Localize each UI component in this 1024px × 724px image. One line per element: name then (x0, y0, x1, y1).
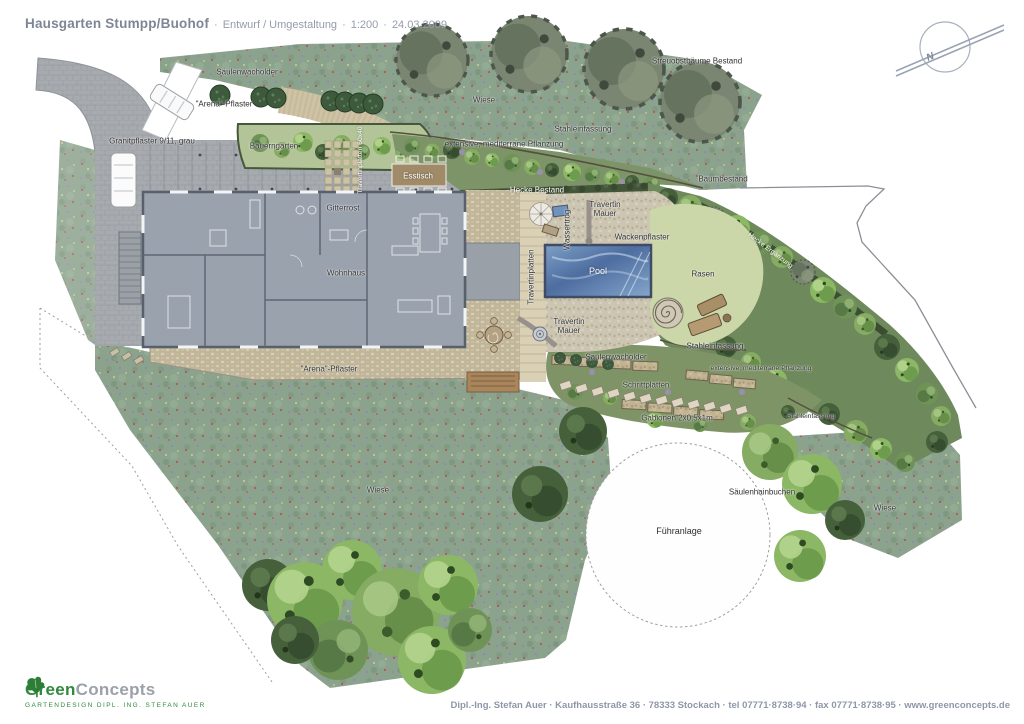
company-logo: Green Concepts GARTENDESIGN DIPL. ING. S… (25, 676, 206, 709)
car-parked (111, 153, 136, 207)
label-esstisch: Esstisch (403, 171, 433, 180)
title-separator: · (383, 19, 387, 31)
label-gabionen: Gabionen 2x0,5x1m (641, 413, 713, 422)
label-streuobstbaeume: Streuobstbäume Bestand (652, 56, 742, 65)
label-wiese-top: Wiese (473, 95, 495, 104)
north-symbol: N (896, 22, 1004, 76)
label-wackenpflaster: Wackenpflaster (615, 232, 670, 241)
label-extensive-top: extensive, mediterrane Pflanzung (445, 139, 564, 148)
label-arena-pflaster-top: "Arena"-Pflaster (196, 99, 253, 108)
label-schrittplatten: Schrittplatten (623, 380, 670, 389)
label-travertin-mauer-mid: Travertin Mauer (553, 317, 584, 335)
site-plan-drawing: N (0, 0, 1024, 724)
label-baumbestand: Baumbestand (698, 174, 747, 183)
label-pool: Pool (589, 266, 607, 276)
label-saeulenwacholder-top: Säulenwacholder (216, 67, 277, 76)
label-granitpflaster: Granitpflaster 9/11, grau (109, 136, 195, 145)
footer-address: Dipl.-Ing. Stefan Auer · Kaufhausstraße … (451, 700, 1011, 711)
label-bauerngarten: Bauerngarten (250, 141, 298, 150)
north-letter: N (925, 51, 937, 64)
herb-spiral (653, 298, 683, 328)
subtitle-scale: 1:200 (351, 19, 379, 31)
label-wassertrog: Wassertrog (562, 210, 571, 251)
page-title: Hausgarten Stumpp/Buohof (25, 16, 209, 31)
label-gitterrost: Gitterrost (327, 203, 360, 212)
label-fuehranlage: Führanlage (656, 526, 702, 536)
stairs-west (119, 232, 141, 304)
label-stahleinfassung-right: Stahleinfassung (787, 413, 835, 421)
label-wiese-right: Wiese (874, 503, 896, 512)
label-rasen: Rasen (691, 269, 714, 278)
label-saeulenhainbuchen: Säulenhainbuchen (729, 487, 795, 496)
subtitle-phase: Entwurf / Umgestaltung (223, 19, 337, 31)
fountain (533, 327, 547, 341)
logo-word-concepts: Concepts (76, 680, 156, 700)
ivy-leaf-icon (24, 674, 51, 702)
plan-sheet: N Hausgarten Stumpp/Buohof·Entwurf / Umg… (0, 0, 1024, 724)
label-hecke-bestand: Hecke Bestand (510, 185, 564, 194)
label-travertinplatten-terrasse: Travertinplatten 60x40 (357, 126, 365, 193)
label-travertin-mauer-top: Travertin Mauer (589, 200, 620, 218)
wood-steps (467, 372, 519, 392)
title-separator: · (214, 19, 218, 31)
label-travertinplatten-pool: Travertinplatten (526, 249, 535, 304)
title-separator: · (342, 19, 346, 31)
umbrella (530, 203, 553, 226)
label-stahleinfassung-mid: Stahleinfassung (687, 341, 744, 350)
label-extensive-mid: extensive, mediterrane Pflanzung (711, 365, 812, 373)
title-block: Hausgarten Stumpp/Buohof·Entwurf / Umges… (25, 15, 447, 33)
wohnhaus-building (143, 192, 465, 347)
label-stahleinfassung-top: Stahleinfassung (555, 124, 612, 133)
label-wiese-left: Wiese (367, 485, 389, 494)
label-arena-pflaster-bottom: "Arena"-Pflaster (301, 364, 358, 373)
subtitle-date: 24.03.2009 (392, 19, 447, 31)
logo-tagline: GARTENDESIGN DIPL. ING. STEFAN AUER (25, 702, 206, 709)
label-wohnhaus: Wohnhaus (327, 268, 365, 277)
label-saeulenwacholder-mid: Säulenwacholder (585, 352, 646, 361)
